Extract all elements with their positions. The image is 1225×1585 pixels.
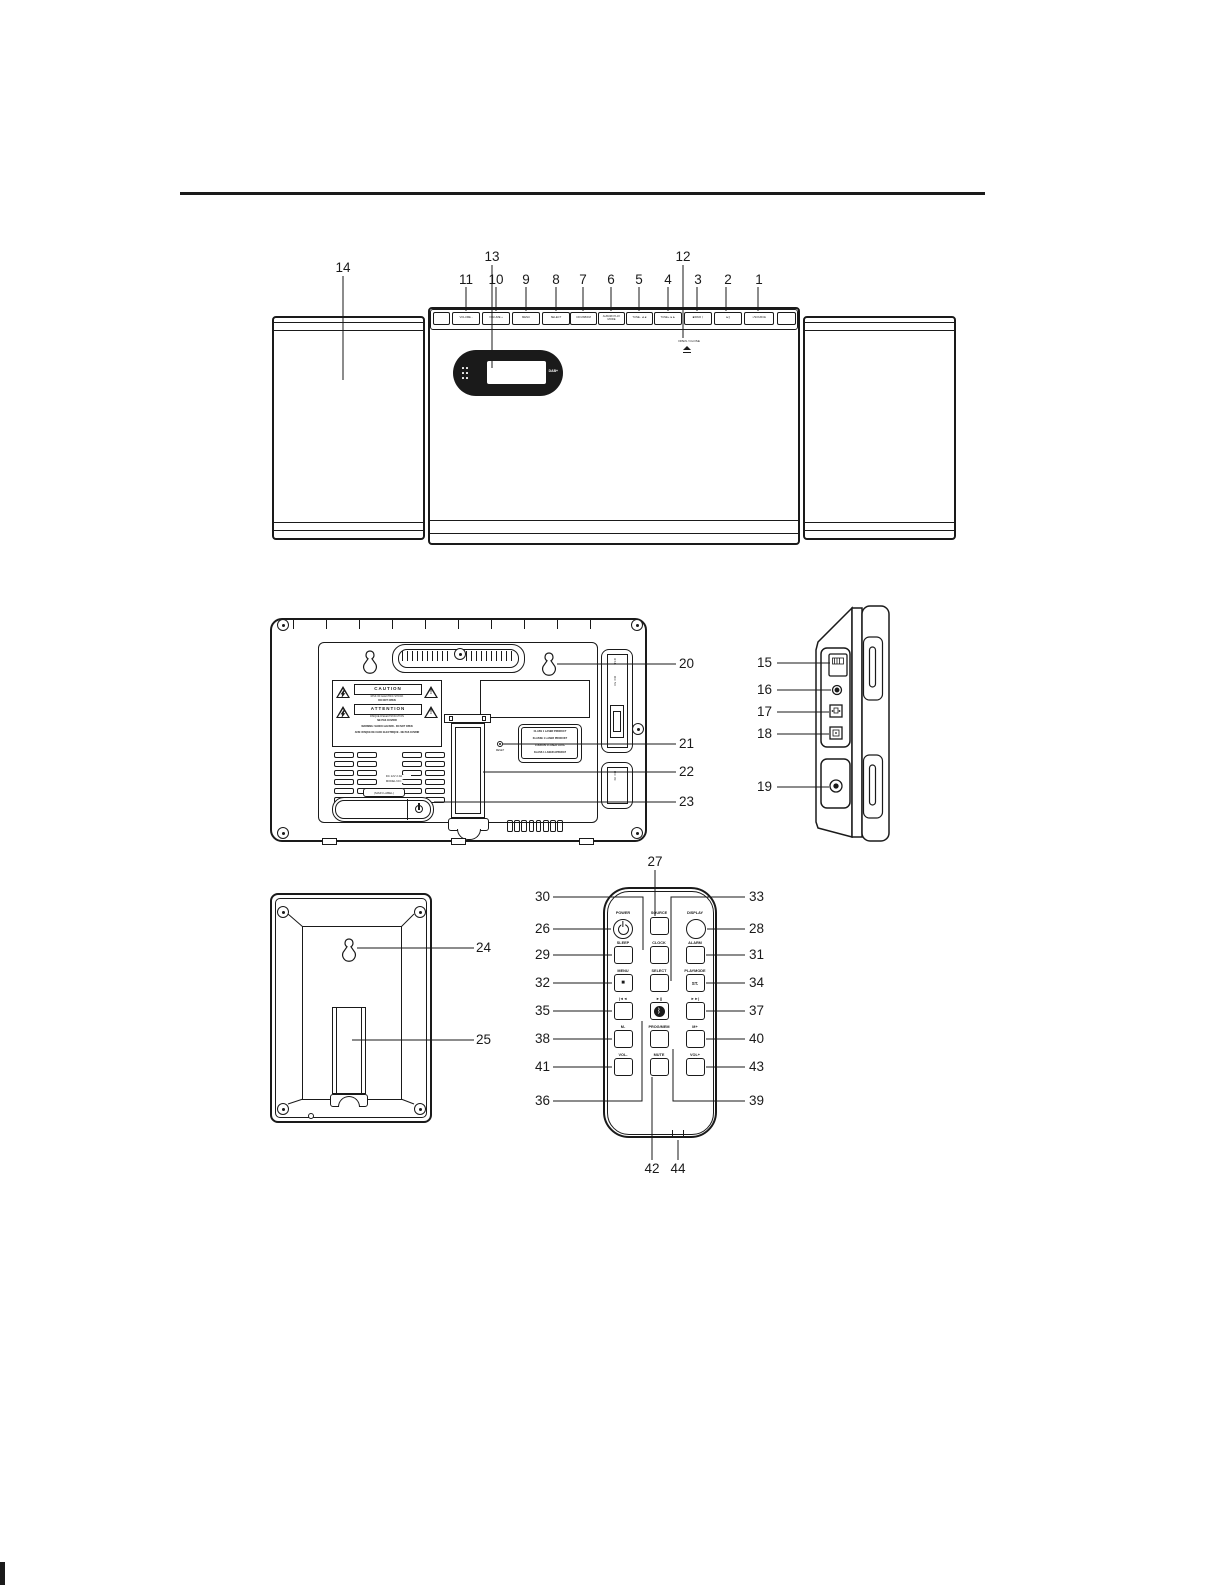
speaker-terminal-holes [507, 820, 563, 832]
remote-play-pause-bt-button[interactable]: ᛒ [650, 1002, 669, 1020]
corner-screw [414, 1103, 426, 1115]
callout-5: 5 [630, 273, 648, 287]
callout-40: 40 [749, 1032, 775, 1046]
remote-m-minus-button[interactable] [614, 1030, 633, 1048]
bluetooth-icon: ᛒ [654, 1006, 665, 1017]
manual-page: VOLUME - VOLUME + MENU SELECT CD/USB/FM … [0, 0, 1225, 1585]
corner-screw [277, 906, 289, 918]
side-view-graphic [805, 600, 900, 845]
remote-alarm-button[interactable] [686, 946, 705, 964]
remote-bottom-slot [672, 1130, 684, 1138]
main-unit [428, 307, 800, 545]
foot [579, 838, 594, 845]
callout-38: 38 [524, 1032, 550, 1046]
remote-m-plus-button[interactable] [686, 1030, 705, 1048]
callout-25: 25 [476, 1033, 494, 1047]
left-speaker [272, 316, 425, 540]
caution-label: ! ! CAUTION RISK OF ELECTRIC SHOCK DO NO… [332, 680, 442, 747]
callout-33: 33 [749, 890, 775, 904]
callout-27: 27 [646, 855, 664, 869]
album-playmode-button[interactable]: ALBUM/ PLAY MODE [598, 312, 625, 325]
dab-logo: DAB+ [549, 369, 558, 373]
stereo-label: ST. [692, 981, 699, 986]
corner-screw [277, 1103, 289, 1115]
remote-menu-stop-button[interactable]: ■ [614, 974, 633, 992]
corner-screw [277, 827, 289, 839]
callout-37: 37 [749, 1004, 775, 1018]
remote-playmode-button[interactable]: ST. [686, 974, 705, 992]
callout-34: 34 [749, 976, 775, 990]
callout-31: 31 [749, 948, 775, 962]
open-close-label: OPEN / CLOSE [667, 339, 711, 343]
lcd-display [487, 361, 546, 384]
callout-18: 18 [746, 727, 772, 741]
callout-15: 15 [746, 656, 772, 670]
callout-8: 8 [547, 273, 565, 287]
laser-label: CLASS 1 LASER PRODUCT KLASSE 1 LASER PRO… [518, 724, 582, 763]
eject-icon [683, 346, 691, 350]
callout-12: 12 [674, 250, 692, 264]
bar-endcap-left [433, 312, 450, 325]
handle-screw [454, 648, 466, 660]
callout-42: 42 [643, 1162, 661, 1176]
callout-28: 28 [749, 922, 775, 936]
callout-2: 2 [719, 273, 737, 287]
remote-skip-forward-button[interactable] [686, 1002, 705, 1020]
header-rule [180, 192, 985, 195]
callout-3: 3 [689, 273, 707, 287]
callout-17: 17 [746, 705, 772, 719]
foot [451, 838, 466, 845]
remote-source-button[interactable] [650, 917, 669, 935]
top-vent-ticks [293, 618, 593, 629]
remote-display-button[interactable] [686, 919, 706, 939]
remote-vol-plus-button[interactable] [686, 1058, 705, 1076]
cable-hole [308, 1113, 314, 1119]
callout-39: 39 [749, 1094, 775, 1108]
volume-plus-button[interactable]: VOLUME + [482, 312, 510, 325]
callout-9: 9 [517, 273, 535, 287]
remote-sleep-button[interactable] [614, 946, 633, 964]
callout-26: 26 [524, 922, 550, 936]
source-mode-button[interactable]: CD/USB/FM [570, 312, 597, 325]
usb-port [829, 654, 847, 676]
alert-warning-icon: ! [424, 706, 438, 718]
callout-14: 14 [334, 261, 352, 275]
select-button[interactable]: SELECT [542, 312, 570, 325]
alert-warning-icon: ! [424, 686, 438, 698]
corner-screw [414, 906, 426, 918]
callout-35: 35 [524, 1004, 550, 1018]
callout-43: 43 [749, 1060, 775, 1074]
remote-clock-button[interactable] [650, 946, 669, 964]
scan-artifact [0, 1562, 5, 1585]
callout-16: 16 [746, 683, 772, 697]
callout-20: 20 [679, 657, 705, 671]
foot [322, 838, 337, 845]
remote-power-button[interactable] [613, 919, 633, 939]
callout-29: 29 [524, 948, 550, 962]
corner-screw [631, 827, 643, 839]
play-pause-button[interactable]: ►|| [714, 312, 742, 325]
usb-port-label: USB [613, 658, 617, 672]
callout-1: 1 [750, 273, 768, 287]
callout-24: 24 [476, 941, 494, 955]
stop-icon: ■ [621, 980, 625, 986]
menu-button[interactable]: MENU [512, 312, 540, 325]
callout-19: 19 [746, 780, 772, 794]
volume-minus-button[interactable]: VOLUME - [452, 312, 480, 325]
callout-10: 10 [487, 273, 505, 287]
callout-23: 23 [679, 795, 705, 809]
callout-6: 6 [602, 273, 620, 287]
callout-11: 11 [457, 273, 475, 287]
remote-vol-minus-button[interactable] [614, 1058, 633, 1076]
main-label-box: (MAIN LABEL) [363, 788, 405, 798]
shock-warning-icon [336, 686, 350, 698]
callout-22: 22 [679, 765, 705, 779]
remote-mute-button[interactable] [650, 1058, 669, 1076]
tune-down-button[interactable]: TUNE- ◄◄ [626, 312, 653, 325]
callout-7: 7 [574, 273, 592, 287]
callout-44: 44 [669, 1162, 687, 1176]
callout-41: 41 [524, 1060, 550, 1074]
rating-text: DC 12V 2.0A [377, 775, 411, 778]
vent-slots [334, 752, 354, 803]
right-speaker [803, 316, 956, 540]
stop-pair-button[interactable]: ■/PAIR ᛒ [684, 312, 712, 325]
remote-prog-mem-button[interactable] [650, 1030, 669, 1048]
vent-slots [425, 752, 445, 803]
remote-select-button[interactable] [650, 974, 669, 992]
tune-up-button[interactable]: TUNE+ ►► [654, 312, 682, 325]
shock-warning-icon [336, 706, 350, 718]
callout-21: 21 [679, 737, 705, 751]
callout-13: 13 [483, 250, 501, 264]
remote-skip-back-button[interactable] [614, 1002, 633, 1020]
callout-30: 30 [524, 890, 550, 904]
callout-36: 36 [524, 1094, 550, 1108]
display-panel: DAB+ [453, 350, 563, 396]
power-icon [618, 924, 629, 935]
dc-in-label: DC IN [613, 771, 617, 801]
corner-screw [631, 619, 643, 631]
standby-source-button[interactable]: ○/SOURCE [744, 312, 774, 325]
reset-label: RESET [490, 749, 510, 752]
callout-32: 32 [524, 976, 550, 990]
bar-endcap-right [777, 312, 796, 325]
corner-screw [277, 619, 289, 631]
callout-4: 4 [659, 273, 677, 287]
blank-label-plate [480, 680, 590, 718]
remote-sensor-icon [462, 367, 464, 369]
panel-screw [632, 723, 644, 735]
